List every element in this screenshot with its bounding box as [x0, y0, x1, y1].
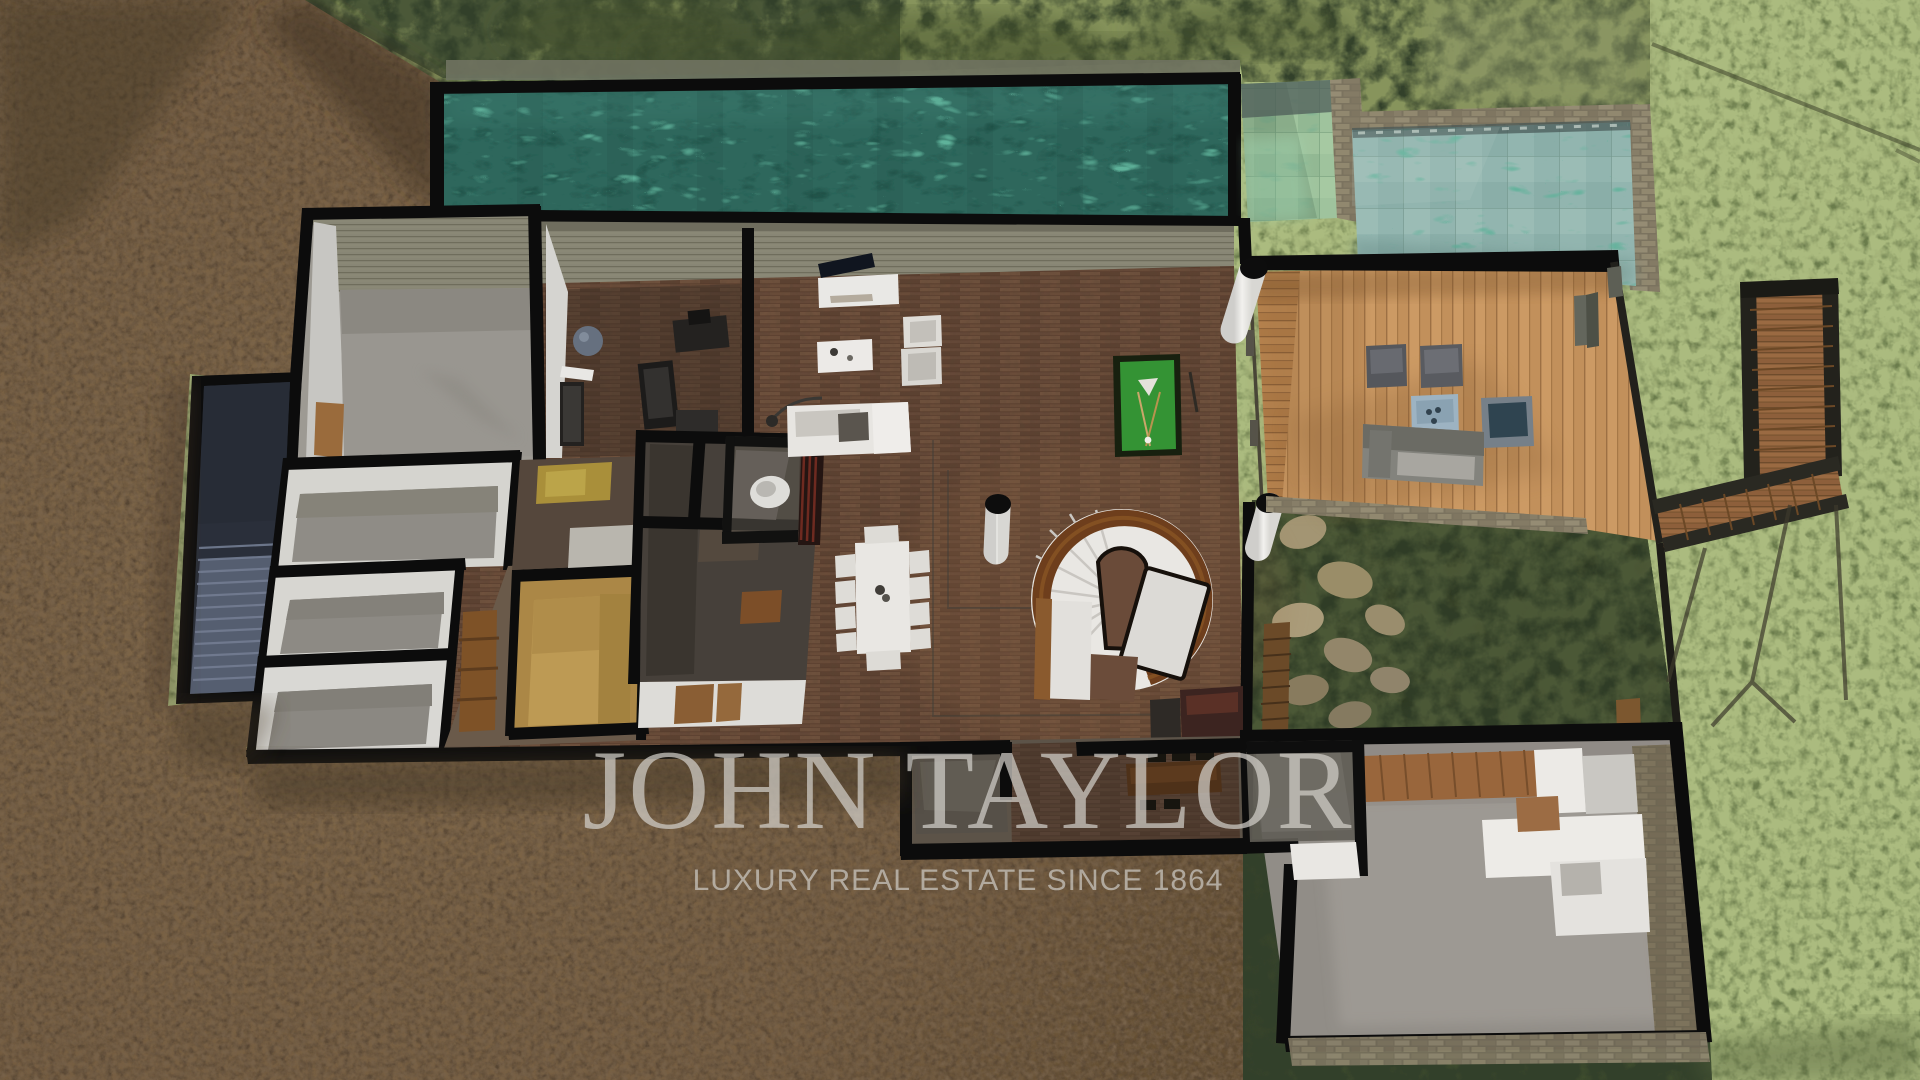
- svg-text:JOHN TAYLOR: JOHN TAYLOR: [583, 728, 1354, 853]
- svg-text:LUXURY REAL ESTATE SINCE 1864: LUXURY REAL ESTATE SINCE 1864: [693, 864, 1224, 897]
